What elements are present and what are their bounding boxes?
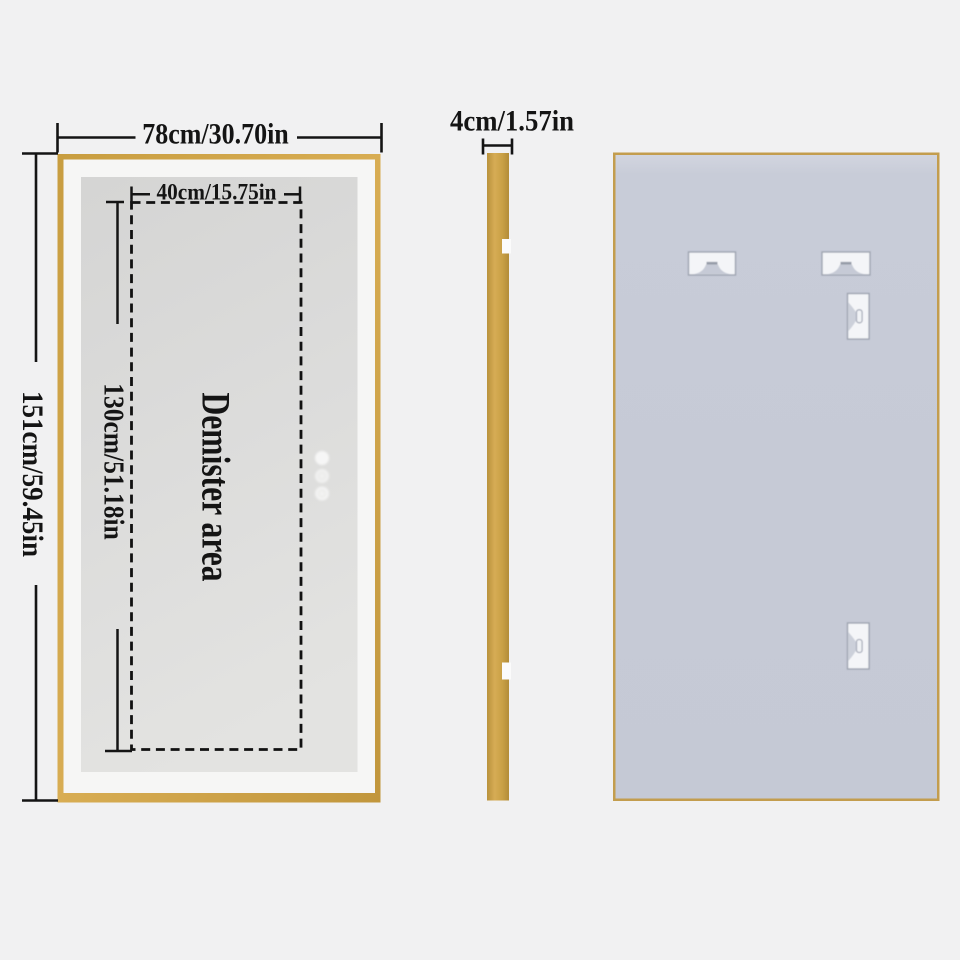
svg-text:130cm/51.18in: 130cm/51.18in — [98, 383, 130, 540]
svg-text:40cm/15.75in: 40cm/15.75in — [157, 180, 277, 205]
svg-text:78cm/30.70in: 78cm/30.70in — [142, 118, 289, 151]
svg-text:151cm/59.45in: 151cm/59.45in — [16, 391, 49, 557]
svg-text:4cm/1.57in: 4cm/1.57in — [450, 105, 574, 138]
svg-text:Demister area: Demister area — [194, 393, 239, 582]
